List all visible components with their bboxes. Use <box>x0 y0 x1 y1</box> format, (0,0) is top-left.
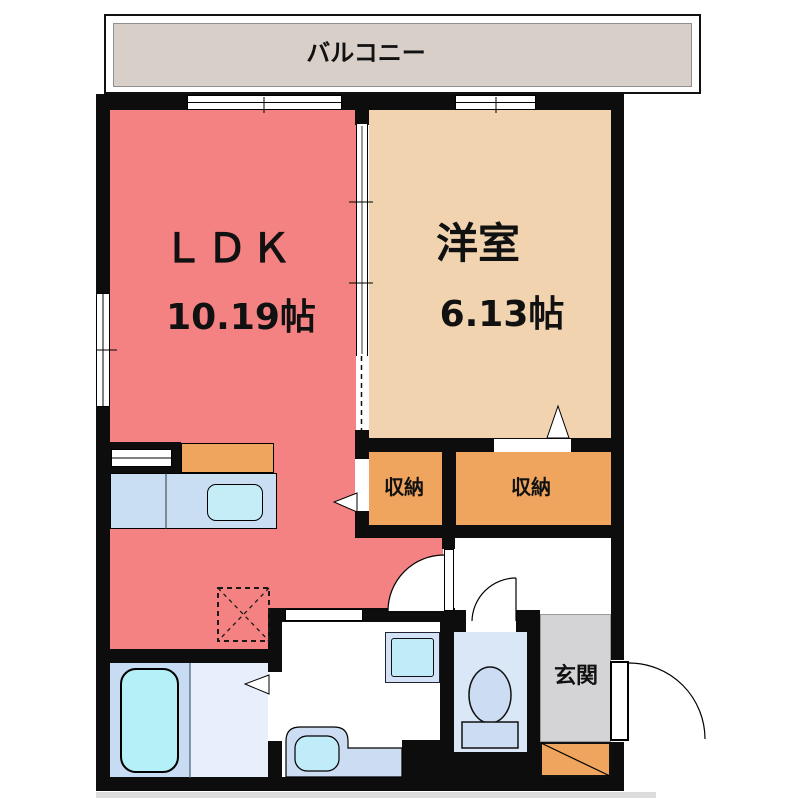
entrance-door-swing-arc <box>629 663 705 739</box>
closet-right-door <box>494 439 571 452</box>
wall-bottom <box>96 777 624 791</box>
ldk-label: ＬＤＫ <box>163 229 295 269</box>
wall-closet-bottom <box>355 525 611 538</box>
storage-left-label: 収納 <box>384 477 424 497</box>
room-ldk-extension <box>356 538 443 611</box>
toilet-door-gap <box>466 610 516 632</box>
wall-toilet-bottom <box>440 752 540 778</box>
entrance-door-leaf <box>610 661 629 741</box>
entrance-label: 玄関 <box>554 666 598 688</box>
room-western <box>369 110 612 439</box>
shoe-cabinet <box>540 742 611 777</box>
sliding-door-partition <box>356 124 368 356</box>
wall-partition-stub <box>355 108 369 125</box>
kitchen-stove <box>181 443 274 473</box>
ldk-door-leaf <box>444 549 454 611</box>
room-ldk <box>110 110 356 609</box>
wall-bath-top <box>110 649 282 663</box>
window-ldk-left <box>96 293 110 407</box>
room-ldk-lower <box>110 608 269 650</box>
room-washarea <box>190 663 268 778</box>
wall-toilet-stub-left <box>454 610 466 632</box>
ldk-size-label: 10.19帖 <box>166 300 316 336</box>
vanity-counter <box>286 727 402 777</box>
balcony-label: バルコニー <box>306 41 426 65</box>
window-kitchen <box>111 449 172 467</box>
wall-utility-block <box>402 740 440 778</box>
window-western-top <box>455 95 536 110</box>
kitchen-sink <box>207 484 263 521</box>
window-ldk-top <box>187 95 342 110</box>
wall-western-bottom <box>355 438 611 452</box>
bathtub <box>120 668 179 773</box>
wall-left <box>96 94 110 791</box>
storage-right-label: 収納 <box>511 477 551 497</box>
floor-plan: バルコニー ＬＤＫ 10.19帖 洋室 6.13帖 収納 収納 玄関 <box>0 0 800 800</box>
western-room-label: 洋室 <box>436 223 520 265</box>
bath-door <box>268 672 282 741</box>
closet-left-door <box>355 459 369 511</box>
western-room-size-label: 6.13帖 <box>440 297 565 333</box>
vanity-basin <box>295 736 339 771</box>
washroom-sliding-door <box>285 609 363 621</box>
washer-pan-inner <box>391 638 434 677</box>
wall-closet-divider <box>442 452 456 526</box>
bottom-shadow <box>96 792 656 798</box>
room-toilet-floor <box>454 632 527 752</box>
wall-ldk-door-stub <box>442 525 455 549</box>
